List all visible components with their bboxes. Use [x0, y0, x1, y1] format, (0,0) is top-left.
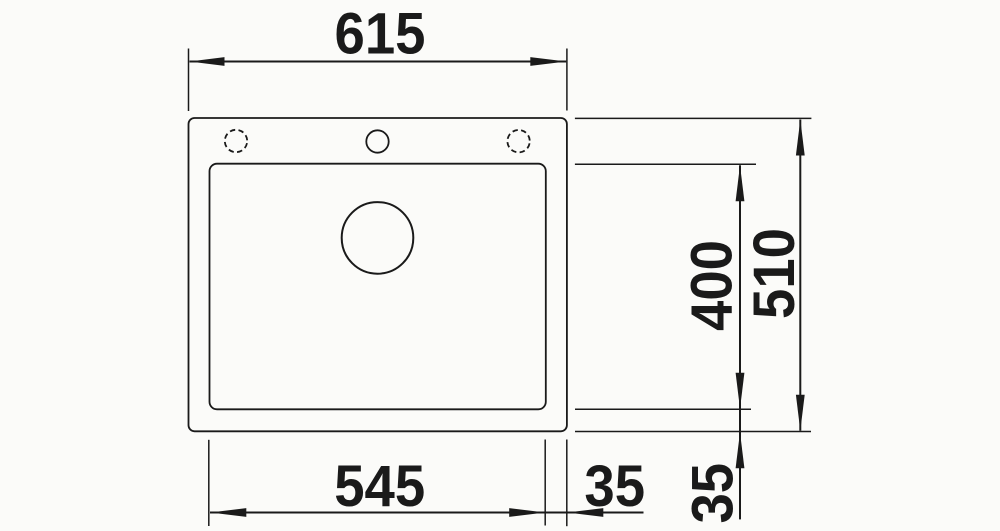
svg-text:615: 615 [335, 1, 426, 66]
svg-text:400: 400 [679, 240, 744, 331]
svg-text:35: 35 [680, 463, 745, 524]
svg-text:510: 510 [741, 228, 806, 319]
svg-text:545: 545 [334, 453, 425, 518]
svg-text:35: 35 [584, 453, 645, 518]
